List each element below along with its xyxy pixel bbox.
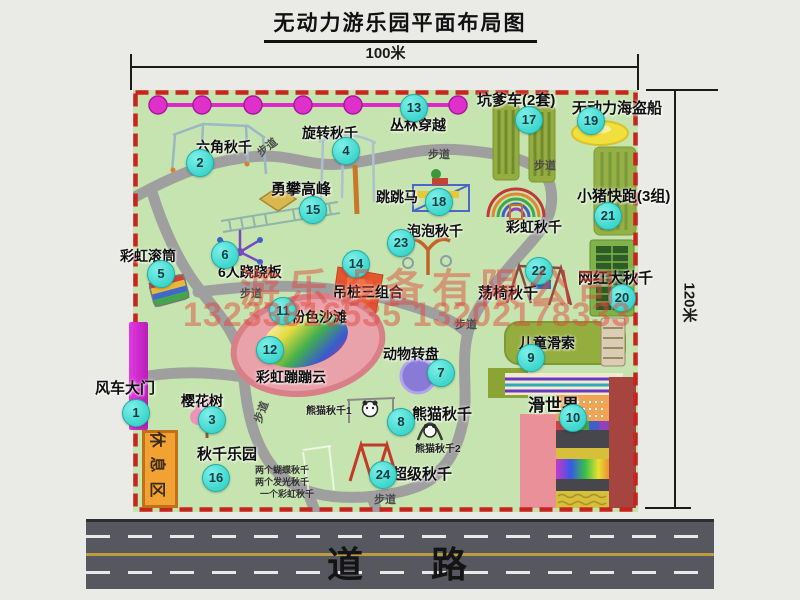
- badge-12: 12: [256, 336, 284, 364]
- label-windmill-gate: 风车大门: [95, 377, 155, 398]
- label-trail-3: 步道: [534, 157, 556, 173]
- dimension-width-line: [130, 66, 639, 68]
- playground-plan-screenshot: 无动力游乐园平面布局图 100米 120米: [0, 0, 800, 600]
- label-panda-swing: 熊猫秋千: [412, 403, 472, 424]
- badge-6: 6: [211, 241, 239, 269]
- badge-2: 2: [186, 149, 214, 177]
- badge-1: 1: [122, 399, 150, 427]
- label-panda-swing-2: 熊猫秋千2: [415, 440, 461, 455]
- dimension-width-tick-right: [637, 54, 639, 90]
- road-label: 道 路: [86, 536, 714, 588]
- label-climbing-bridge: 勇攀高峰: [271, 178, 331, 199]
- badge-17: 17: [515, 106, 543, 134]
- badge-7: 7: [427, 359, 455, 387]
- dimension-height-tick-bottom: [645, 507, 691, 509]
- badge-3: 3: [198, 406, 226, 434]
- label-panda-swing-1: 熊猫秋千1: [306, 402, 352, 417]
- dimension-width-label: 100米: [133, 42, 638, 63]
- label-super-swing: 超级秋千: [392, 463, 452, 484]
- badge-21: 21: [594, 202, 622, 230]
- dimension-height-line: [674, 89, 676, 509]
- slide-world-icon: [488, 368, 636, 508]
- label-pit-cars: 坑爹车(2套): [477, 89, 555, 110]
- dimension-height-tick-top: [646, 89, 718, 91]
- badge-10: 10: [559, 404, 587, 432]
- label-rainbow-cloud: 彩虹蹦蹦云: [256, 367, 326, 387]
- label-trail-7: 步道: [374, 491, 396, 507]
- dimension-width-tick-left: [130, 54, 132, 90]
- badge-8: 8: [387, 408, 415, 436]
- label-piggy-run: 小猪快跑(3组): [577, 185, 670, 206]
- road: 道 路: [86, 519, 714, 589]
- dimension-height-label: 120米: [680, 268, 701, 338]
- rest-area-label: 休息区: [149, 421, 171, 517]
- badge-9: 9: [517, 344, 545, 372]
- page-title-text: 无动力游乐园平面布局图: [264, 7, 537, 43]
- rainbow-arch-swing-icon: [488, 189, 544, 219]
- label-swing-park: 秋千乐园: [197, 443, 257, 464]
- badge-16: 16: [202, 464, 230, 492]
- badge-15: 15: [299, 196, 327, 224]
- watermark-phone: 13233816535 13202178333: [183, 296, 631, 335]
- badge-23: 23: [387, 229, 415, 257]
- badge-5: 5: [147, 260, 175, 288]
- badge-24: 24: [369, 461, 397, 489]
- badge-13: 13: [400, 94, 428, 122]
- badge-18: 18: [425, 188, 453, 216]
- badge-4: 4: [332, 137, 360, 165]
- badge-19: 19: [577, 107, 605, 135]
- label-trail-2: 步道: [428, 146, 450, 162]
- label-rainbow-arch-swing: 彩虹秋千: [506, 217, 562, 237]
- label-swing-park-note-3: 一个彩虹秋千: [260, 487, 314, 500]
- label-bubble-swing: 泡泡秋千: [407, 221, 463, 241]
- page-title: 无动力游乐园平面布局图: [0, 7, 800, 43]
- label-animal-carousel: 动物转盘: [383, 344, 439, 364]
- label-jumping-horse: 跳跳马: [376, 187, 418, 207]
